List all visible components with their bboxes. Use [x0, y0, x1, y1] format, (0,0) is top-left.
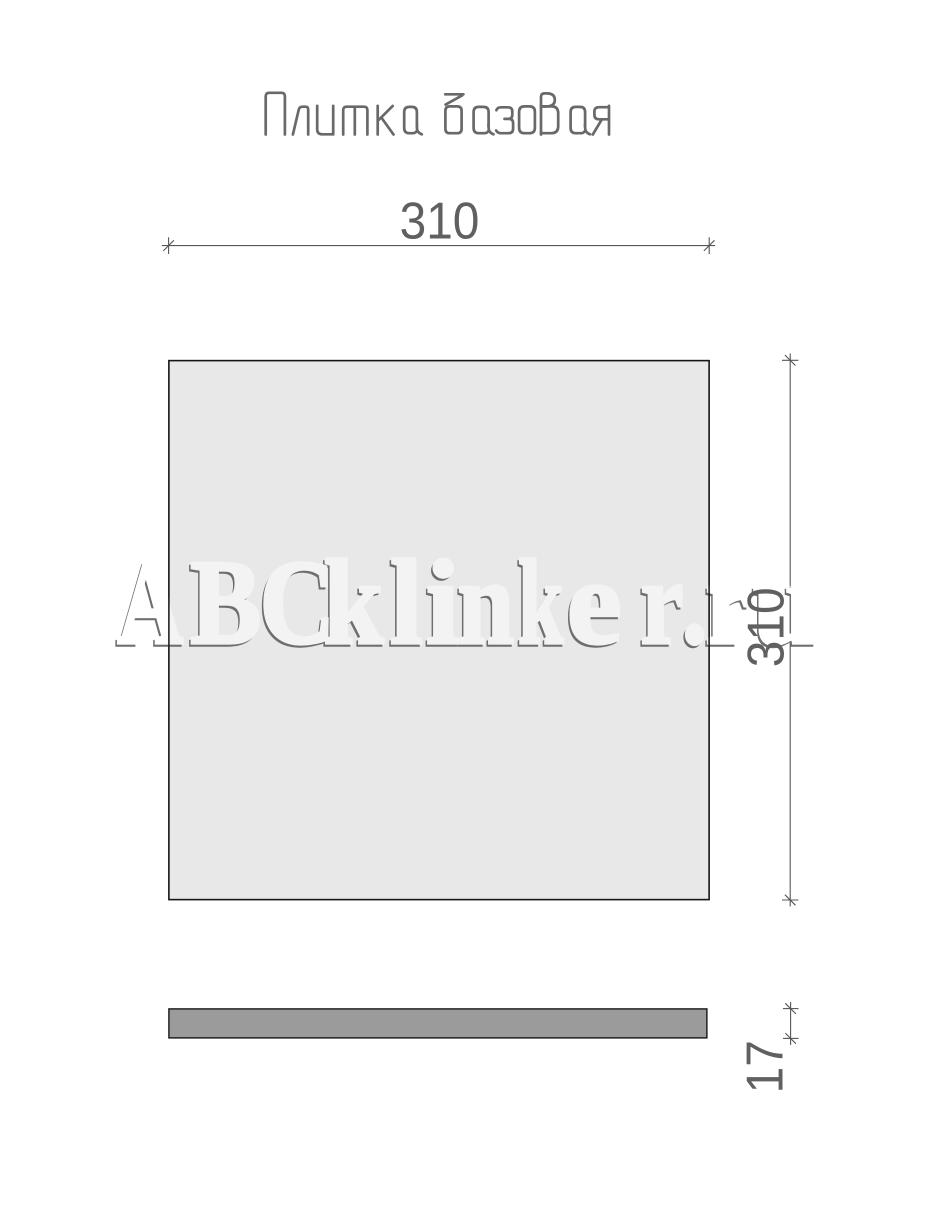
svg-text:e: e	[567, 536, 622, 670]
svg-text:k: k	[323, 536, 383, 670]
svg-text:.: .	[682, 537, 708, 671]
svg-text:17: 17	[736, 1040, 794, 1093]
svg-text:l: l	[390, 535, 422, 669]
svg-text:310: 310	[736, 587, 794, 667]
svg-text:k: k	[518, 537, 564, 671]
svg-text:310: 310	[400, 191, 480, 249]
svg-text:n: n	[457, 536, 514, 670]
svg-text:i: i	[426, 536, 460, 670]
svg-text:r: r	[641, 536, 684, 670]
svg-text:A: A	[117, 536, 183, 670]
svg-text:B: B	[190, 535, 261, 670]
